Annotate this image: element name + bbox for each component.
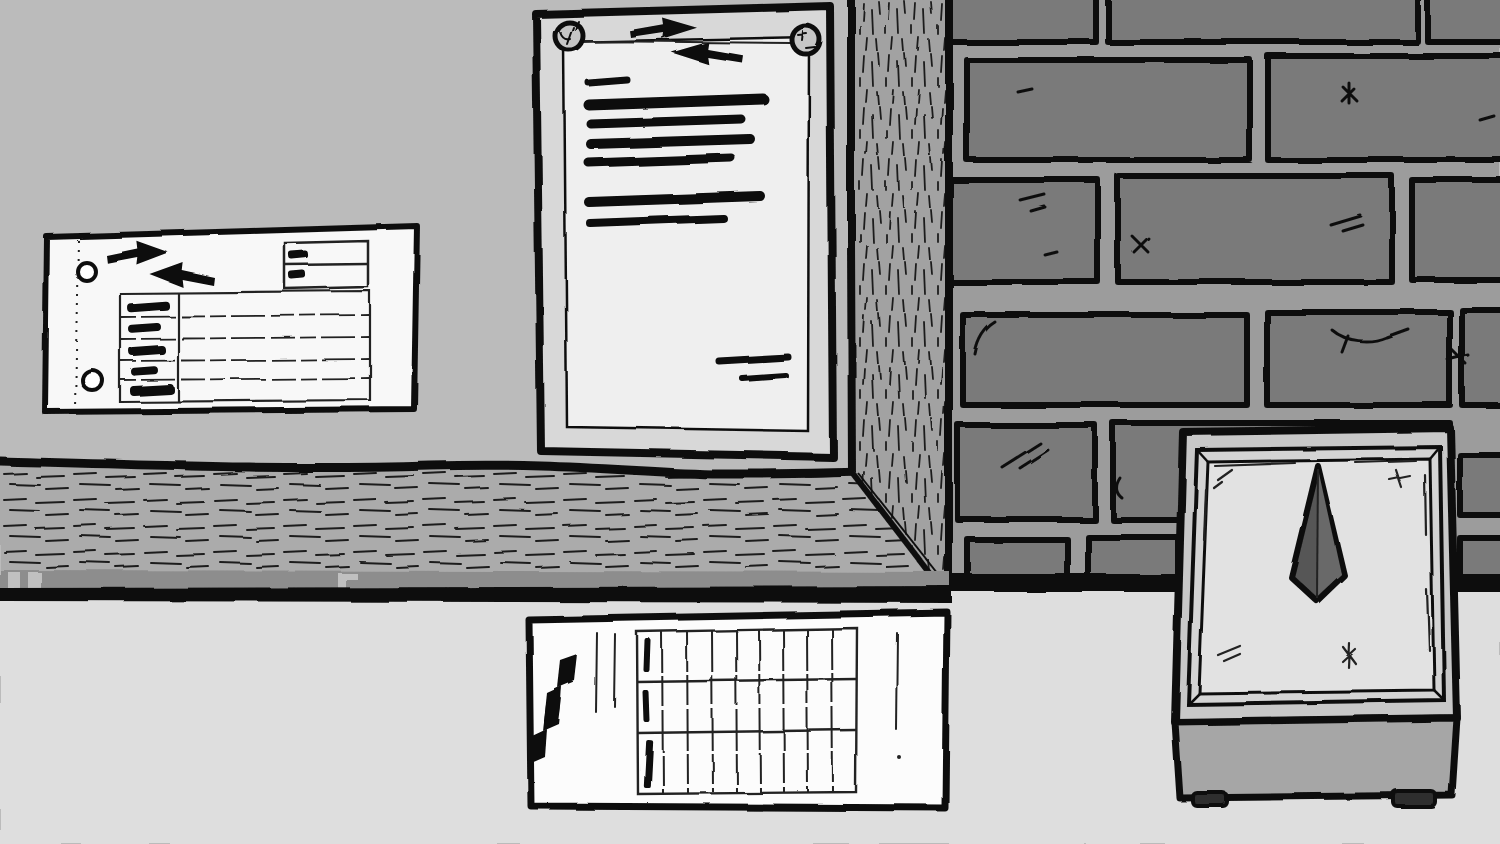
framed-document[interactable] — [536, 6, 833, 457]
scale-base — [1175, 718, 1457, 798]
shelf — [0, 461, 947, 574]
scene-canvas — [0, 0, 1500, 844]
wall-note[interactable] — [45, 226, 417, 412]
dial-scale[interactable] — [1175, 428, 1457, 806]
shelf-rail — [0, 570, 952, 603]
document-paper — [564, 37, 809, 431]
timesheet-form[interactable] — [529, 612, 947, 808]
game-scene — [0, 0, 1500, 844]
shelf-bottom-line — [0, 586, 952, 603]
form-paper[interactable] — [529, 612, 947, 808]
